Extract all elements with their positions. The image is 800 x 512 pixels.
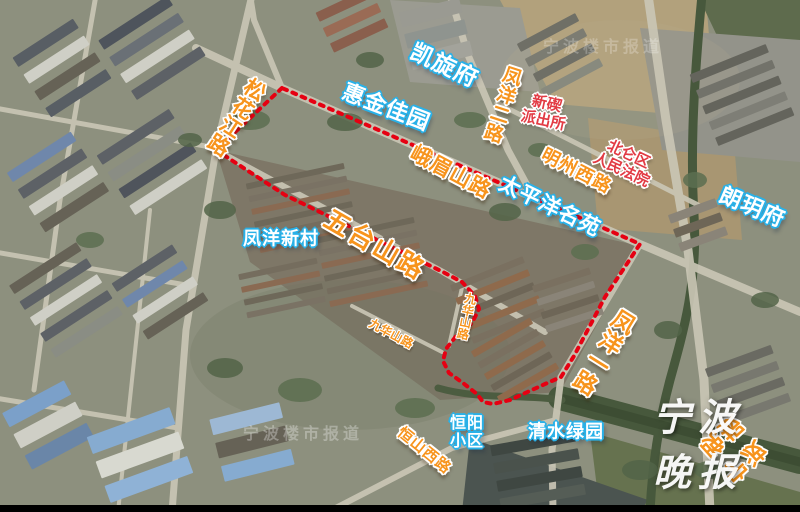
faint-watermark: 宁波楼市报道 (243, 420, 363, 444)
satellite-map-screenshot: 宁波楼市报道 宁波楼市报道 凯旋府 惠金佳园 太平洋名苑 朗玥府 凤洋新村 恒阳… (0, 0, 800, 512)
faint-watermark: 宁波楼市报道 (543, 33, 663, 57)
estate-label-fengyangxincun: 凤洋新村 (243, 231, 319, 250)
estate-label-line: 恒阳 (450, 414, 484, 432)
estate-label-line: 小区 (450, 432, 484, 450)
newspaper-brand-watermark: 宁波晚报·甬 (653, 387, 751, 512)
estate-label-qingshuilvyuan: 清水绿园 (528, 424, 604, 443)
estate-label-hengyangxiaoqu: 恒阳 小区 (450, 414, 484, 450)
bottom-black-bar (0, 505, 800, 512)
